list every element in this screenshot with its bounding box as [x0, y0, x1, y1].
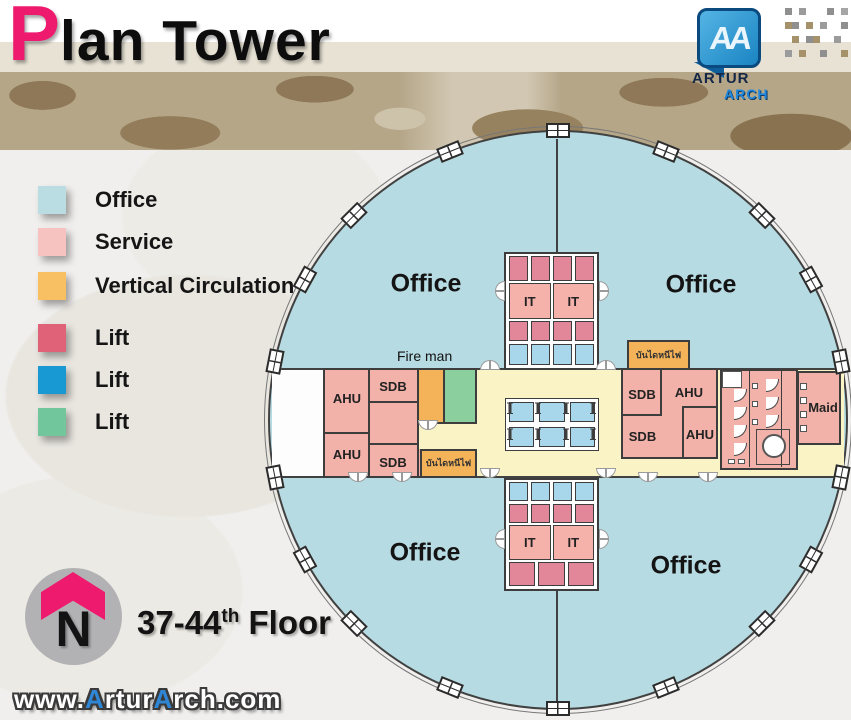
- watermark-part: A: [154, 684, 174, 714]
- sink: [752, 419, 758, 425]
- lift-cell: [509, 482, 528, 501]
- ibeam-column: I: [534, 401, 541, 417]
- lift-cell: [553, 321, 572, 341]
- lift-cell: [575, 256, 594, 281]
- door-swing: [698, 472, 718, 482]
- door-swing: [638, 472, 658, 482]
- slide: Plan Tower AA ARTUR ARCH Office Service …: [0, 0, 851, 720]
- legend-label: Office: [95, 187, 157, 213]
- sink: [738, 459, 745, 464]
- room-label-sdb: SDB: [369, 380, 417, 393]
- floor-ordinal-suffix: th: [221, 606, 239, 627]
- sink: [800, 425, 807, 432]
- door-swing: [418, 420, 438, 430]
- lift-cell: [509, 562, 535, 586]
- ibeam-column: I: [506, 401, 513, 417]
- room-label-ahu: AHU: [661, 386, 717, 399]
- wall: [368, 443, 417, 445]
- lift-cell: [575, 504, 594, 523]
- door-swing: [480, 468, 500, 478]
- legend-label: Lift: [95, 325, 129, 351]
- watermark-part: www.: [14, 684, 85, 714]
- page-title: Plan Tower: [8, 0, 331, 72]
- sink: [752, 383, 758, 389]
- lift-cell: [531, 482, 550, 501]
- lift-cell: [575, 321, 594, 341]
- north-letter: N: [25, 600, 122, 658]
- room-label-sdb: SDB: [623, 388, 661, 401]
- stall-door: [734, 425, 747, 438]
- room-label-sdb: SDB: [369, 456, 417, 469]
- legend-swatch-office: [38, 186, 66, 214]
- lift-cell: [531, 256, 550, 281]
- legend-swatch-vertical-circulation: [38, 272, 66, 300]
- lift-cell: [531, 504, 550, 523]
- lift-cell: [509, 344, 528, 365]
- left-service-wing: AHU SDB AHU SDB บันไดหนีไฟ: [323, 368, 477, 478]
- legend-swatch-service: [38, 228, 66, 256]
- fire-man-label: Fire man: [397, 348, 452, 364]
- lift-cell: [531, 344, 550, 365]
- ibeam-column: I: [562, 401, 569, 417]
- room-label-ahu: AHU: [326, 392, 368, 405]
- legend-item-lift-green: Lift: [38, 408, 294, 436]
- stall-door: [766, 379, 779, 392]
- floor-range-label: 37-44th Floor: [137, 604, 331, 642]
- legend-swatch-lift-green: [38, 408, 66, 436]
- lift-bank-row: [507, 255, 596, 282]
- door-swing: [392, 472, 412, 482]
- sink: [752, 401, 758, 407]
- wall: [368, 401, 417, 403]
- stall-door: [734, 389, 747, 402]
- office-label-bottom-left: Office: [390, 539, 461, 568]
- door-swing: [480, 360, 500, 370]
- floor-range: 37-44: [137, 604, 221, 641]
- fire-escape-stair: บันไดหนีไฟ: [420, 449, 477, 478]
- ibeam-column: I: [589, 401, 596, 417]
- it-room: IT: [509, 525, 551, 560]
- core-bottom: IT IT: [504, 478, 599, 591]
- lift-cell: [575, 344, 594, 365]
- lift-cell: [553, 504, 572, 523]
- watermark-part: rch.com: [173, 684, 281, 714]
- center-partition-line-top: [556, 139, 558, 253]
- ibeam-column: I: [562, 427, 569, 443]
- legend-label: Vertical Circulation: [95, 273, 294, 299]
- lift-cell: [509, 504, 528, 523]
- lift-cell: [553, 256, 572, 281]
- room-label-maid: Maid: [805, 401, 841, 414]
- watermark-part: A: [85, 684, 105, 714]
- column-marker: [546, 123, 570, 138]
- stall-door: [766, 415, 779, 428]
- sink: [800, 383, 807, 390]
- door-swing: [495, 281, 505, 301]
- office-label-top-left: Office: [391, 270, 462, 299]
- lift-cell: [531, 321, 550, 341]
- legend-label: Service: [95, 229, 173, 255]
- toilet-block: [720, 369, 798, 470]
- column-marker: [546, 701, 570, 716]
- logo-line-artur: ARTUR: [692, 70, 750, 87]
- legend-item-service: Service: [38, 228, 294, 256]
- lift-cell: [509, 321, 528, 341]
- center-lift-bank: I I I I I I I I: [505, 398, 599, 451]
- lift-cell: [553, 482, 572, 501]
- office-label-bottom-right: Office: [651, 552, 722, 581]
- round-basin: [762, 434, 786, 458]
- door-swing: [599, 529, 609, 549]
- column-marker: [831, 464, 850, 490]
- sink: [728, 459, 735, 464]
- stall-door: [734, 443, 747, 456]
- legend-item-lift-blue: Lift: [38, 366, 294, 394]
- lift-cell: [553, 344, 572, 365]
- lift-bank-row: [507, 503, 596, 524]
- column-marker: [831, 348, 850, 374]
- wall: [623, 414, 662, 416]
- lift-bank-row: [507, 320, 596, 342]
- watermark: www.ArturArch.com: [14, 684, 281, 715]
- logo-mark-letters: AA: [708, 20, 750, 57]
- lift-cell: [509, 256, 528, 281]
- door-swing: [596, 468, 616, 478]
- door-swing: [348, 472, 368, 482]
- office-label-top-right: Office: [666, 271, 737, 300]
- door-swing: [596, 360, 616, 370]
- lift-cell: [575, 482, 594, 501]
- right-service-wing: SDB AHU SDB AHU: [621, 368, 718, 459]
- legend-label: Lift: [95, 367, 129, 393]
- legend-item-vertical-circulation: Vertical Circulation: [38, 272, 294, 300]
- lift-bank-row-blue: [507, 481, 596, 502]
- toilet-fixture: [722, 371, 742, 388]
- center-partition-line-bottom: [556, 589, 558, 708]
- legend-item-lift-red: Lift: [38, 324, 294, 352]
- lift-bank-row-blue: [507, 343, 596, 366]
- door-swing: [495, 529, 505, 549]
- legend-swatch-lift-blue: [38, 366, 66, 394]
- stall-door: [734, 407, 747, 420]
- wall: [325, 432, 368, 434]
- ibeam-column: I: [534, 427, 541, 443]
- wall: [682, 406, 716, 408]
- core-top: IT IT: [504, 252, 599, 370]
- lift-cell: [539, 427, 564, 447]
- logo-dot-pattern: [785, 8, 792, 15]
- it-room: IT: [553, 525, 595, 560]
- wall: [749, 371, 750, 467]
- legend-swatch-lift-red: [38, 324, 66, 352]
- fireman-lift: [417, 368, 445, 424]
- title-text: lan Tower: [60, 13, 331, 70]
- fire-escape-stair: บันไดหนีไฟ: [627, 340, 690, 370]
- room-label-ahu: AHU: [326, 448, 368, 461]
- title-accent-letter: P: [8, 0, 60, 72]
- logo-line-arch: ARCH: [724, 86, 768, 102]
- stall-door: [766, 397, 779, 410]
- it-row: IT IT: [507, 283, 596, 319]
- room-label-ahu: AHU: [682, 428, 718, 441]
- ibeam-column: I: [589, 427, 596, 443]
- ibeam-column: I: [506, 427, 513, 443]
- artur-arch-logo: AA: [697, 8, 761, 68]
- legend-item-office: Office: [38, 186, 294, 214]
- it-room: IT: [509, 283, 551, 319]
- maid-room: Maid: [797, 371, 841, 445]
- lift-cell: [538, 562, 564, 586]
- it-room: IT: [553, 283, 595, 319]
- floor-word: Floor: [239, 604, 331, 641]
- room-label-sdb: SDB: [623, 430, 662, 443]
- green-lift: [443, 368, 477, 424]
- watermark-part: rtur: [105, 684, 154, 714]
- lift-cell: [568, 562, 594, 586]
- lift-bank-row: [507, 561, 596, 587]
- lift-cell: [539, 402, 564, 422]
- door-swing: [599, 281, 609, 301]
- it-row: IT IT: [507, 525, 596, 560]
- legend: Office Service Vertical Circulation Lift…: [38, 186, 294, 436]
- legend-label: Lift: [95, 409, 129, 435]
